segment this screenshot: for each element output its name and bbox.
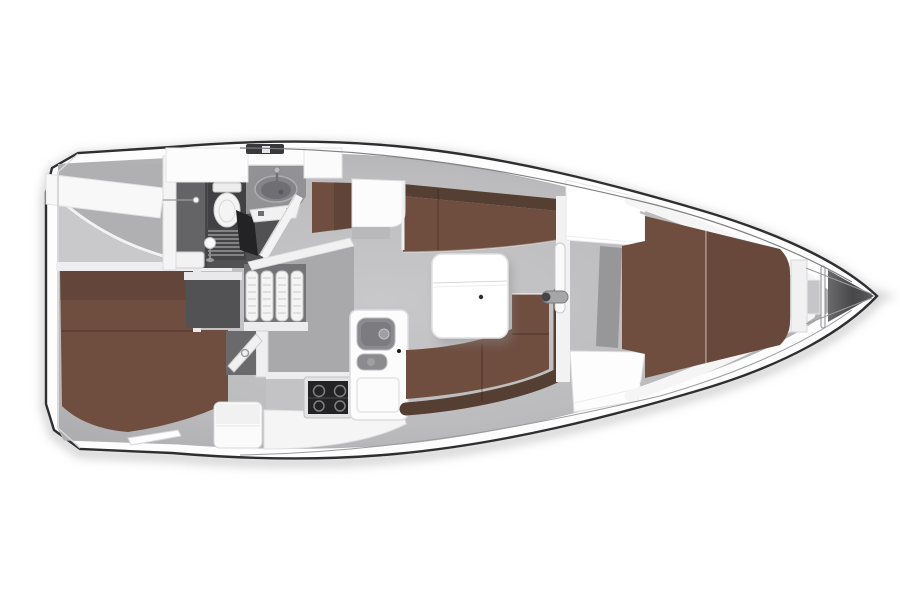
hatch-handle (262, 146, 270, 153)
nav-top-cabinet (304, 148, 342, 178)
head-top-cabinet (166, 148, 248, 182)
aft-berth-shading (60, 268, 196, 300)
sink-drain (379, 329, 389, 339)
counter-end-panel (266, 379, 304, 410)
boat-floor-plan: Sailing yacht interior layout — overhead… (0, 0, 900, 600)
v-berth-shading (706, 231, 790, 363)
step-base-ledge (244, 322, 308, 331)
basin-faucet-knob (274, 167, 280, 173)
bow-bulkhead (791, 260, 807, 332)
galley-seat-top (216, 404, 260, 424)
nav-desk-step (352, 227, 390, 239)
head-step-shelf (174, 252, 204, 268)
boat-floor-plan-page: Sailing yacht interior layout — overhead… (0, 0, 900, 600)
nav-desk (352, 179, 405, 227)
forward-cabin-doorway (596, 246, 622, 348)
nav-seat-shading (334, 182, 352, 231)
shelf-notch-left (258, 211, 264, 216)
faucet-knob (397, 349, 401, 353)
toilet-cistern (213, 183, 241, 192)
sink-secondary-drain (367, 358, 375, 366)
shower-mixer-base (206, 258, 214, 262)
under-stair-locker (184, 272, 242, 328)
locker-opening (186, 280, 240, 328)
windlass-plate (807, 280, 820, 314)
locker-rim (184, 272, 242, 280)
callout-dot (193, 197, 199, 203)
shower-mixer-knob (205, 238, 216, 249)
table-latch (479, 295, 483, 299)
basin-drain (279, 190, 284, 195)
fire-extinguisher-cap (542, 293, 551, 302)
salon-table (432, 254, 508, 338)
